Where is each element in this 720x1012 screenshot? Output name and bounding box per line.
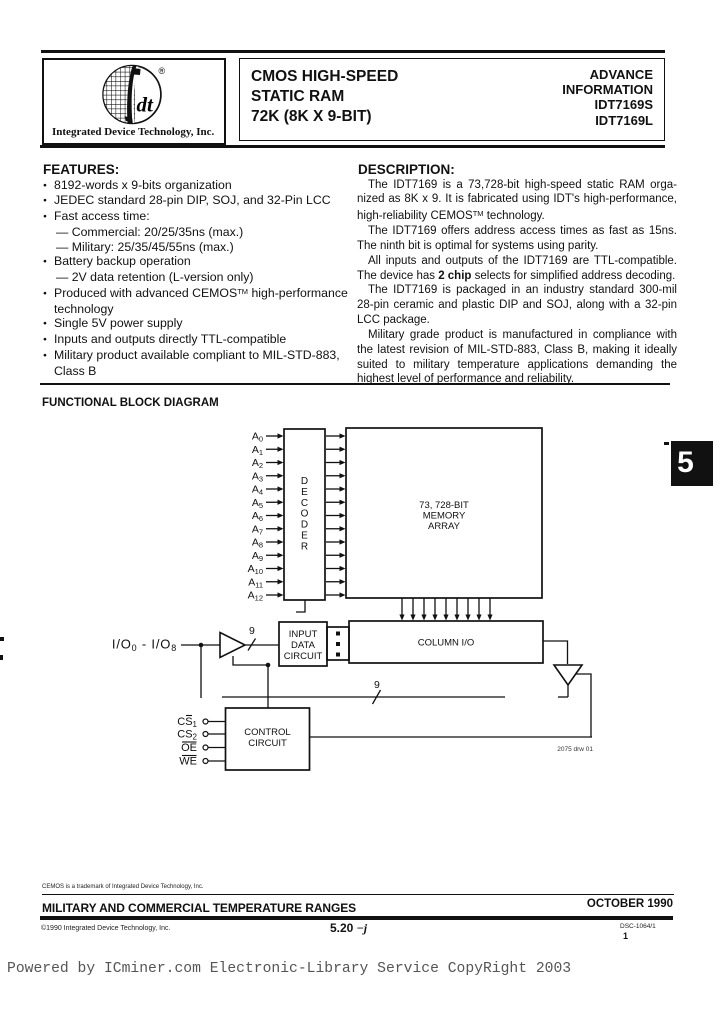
svg-text:9: 9	[374, 679, 380, 691]
svg-text:ARRAY: ARRAY	[428, 521, 461, 532]
svg-text:O: O	[301, 509, 309, 520]
svg-text:A9: A9	[252, 550, 263, 563]
svg-text:INPUT: INPUT	[289, 629, 318, 640]
svg-text:A12: A12	[248, 590, 263, 603]
svg-text:COLUMN I/O: COLUMN I/O	[418, 638, 474, 649]
svg-text:A7: A7	[252, 523, 263, 536]
svg-text:A3: A3	[252, 470, 263, 483]
svg-text:A1: A1	[252, 444, 263, 457]
svg-text:A4: A4	[252, 484, 263, 497]
svg-text:D: D	[301, 520, 308, 531]
svg-text:DATA: DATA	[291, 640, 316, 651]
svg-text:CONTROL: CONTROL	[244, 727, 290, 738]
svg-text:2075 drw 01: 2075 drw 01	[557, 746, 593, 753]
svg-text:A6: A6	[252, 510, 263, 523]
svg-text:E: E	[301, 487, 308, 498]
svg-text:CIRCUIT: CIRCUIT	[284, 651, 323, 662]
svg-text:A11: A11	[248, 576, 263, 589]
svg-text:A2: A2	[252, 457, 263, 470]
svg-text:A5: A5	[252, 497, 263, 510]
svg-text:R: R	[301, 541, 308, 552]
svg-text:73, 728-BIT: 73, 728-BIT	[419, 500, 469, 511]
svg-text:A10: A10	[248, 563, 263, 576]
svg-text:WE: WE	[179, 756, 197, 768]
svg-text:A0: A0	[252, 431, 263, 444]
svg-text:C: C	[301, 498, 308, 509]
svg-text:9: 9	[249, 625, 255, 637]
svg-text:CS1: CS1	[177, 716, 197, 729]
svg-text:D: D	[301, 476, 308, 487]
svg-text:CIRCUIT: CIRCUIT	[248, 738, 287, 749]
svg-text:A8: A8	[252, 537, 263, 550]
svg-text:CS2: CS2	[177, 729, 197, 742]
svg-text:E: E	[301, 531, 308, 542]
svg-text:I/O0 - I/O8: I/O0 - I/O8	[112, 637, 177, 653]
svg-text:MEMORY: MEMORY	[423, 511, 466, 522]
svg-text:OE: OE	[181, 742, 197, 754]
